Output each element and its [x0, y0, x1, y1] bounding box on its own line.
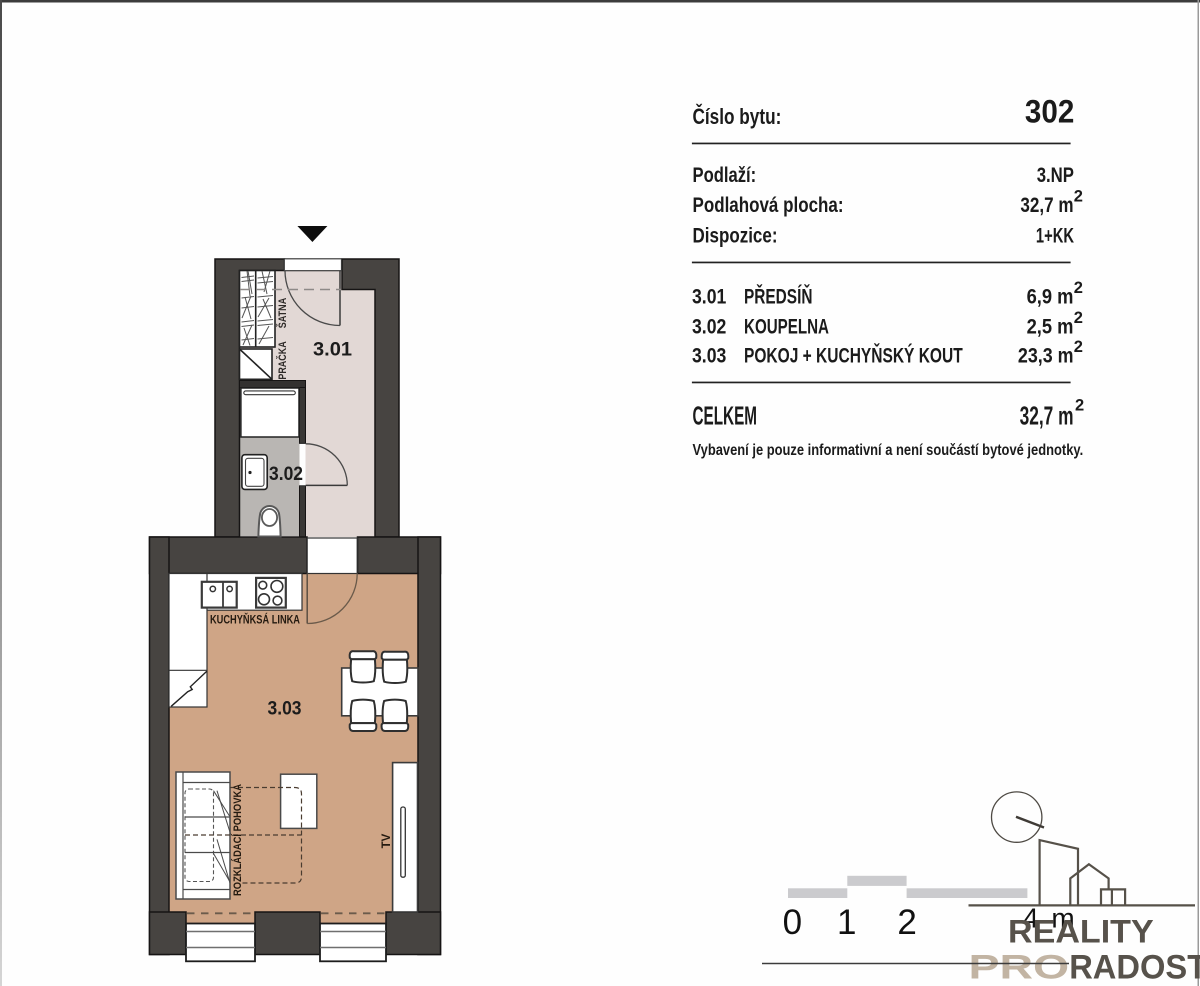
- svg-text:Dispozice:: Dispozice:: [693, 225, 778, 248]
- svg-text:1+KK: 1+KK: [1036, 225, 1074, 248]
- svg-text:32,7 m: 32,7 m: [1020, 194, 1073, 217]
- svg-text:302: 302: [1025, 93, 1074, 129]
- svg-text:KUCHYŇKSÁ LINKA: KUCHYŇKSÁ LINKA: [210, 614, 300, 627]
- svg-text:Podlaží:: Podlaží:: [693, 164, 757, 187]
- svg-text:Vybavení je pouze informativní: Vybavení je pouze informativní a není so…: [693, 442, 1084, 459]
- svg-text:REALITY: REALITY: [1008, 914, 1154, 950]
- svg-text:ROZKLÁDACÍ POHOVKA: ROZKLÁDACÍ POHOVKA: [231, 784, 244, 896]
- svg-text:2: 2: [1074, 188, 1083, 206]
- svg-text:23,3 m: 23,3 m: [1018, 344, 1074, 367]
- svg-text:PRO: PRO: [969, 949, 1070, 986]
- svg-text:3.02: 3.02: [269, 464, 303, 485]
- svg-text:PŘEDSÍŇ: PŘEDSÍŇ: [744, 284, 813, 308]
- svg-text:2: 2: [1074, 338, 1083, 356]
- svg-text:2: 2: [897, 903, 916, 942]
- svg-text:6,9 m: 6,9 m: [1027, 285, 1074, 308]
- svg-text:3.03: 3.03: [692, 344, 726, 367]
- svg-text:0: 0: [783, 903, 802, 942]
- svg-text:3.01: 3.01: [692, 285, 727, 308]
- svg-text:3.NP: 3.NP: [1037, 164, 1074, 187]
- svg-text:RADOST: RADOST: [1069, 949, 1200, 986]
- svg-text:2: 2: [1074, 309, 1083, 327]
- svg-text:3.03: 3.03: [268, 699, 302, 720]
- svg-text:3.01: 3.01: [313, 340, 352, 361]
- svg-text:POKOJ + KUCHYŇSKÝ KOUT: POKOJ + KUCHYŇSKÝ KOUT: [744, 343, 963, 367]
- svg-text:2: 2: [1074, 279, 1083, 297]
- svg-text:KOUPELNA: KOUPELNA: [744, 315, 829, 338]
- svg-text:CELKEM: CELKEM: [693, 401, 758, 431]
- svg-text:TV: TV: [381, 833, 393, 848]
- svg-text:3.02: 3.02: [692, 315, 726, 338]
- svg-text:1: 1: [837, 903, 856, 942]
- svg-text:PRAČKA: PRAČKA: [276, 341, 289, 379]
- svg-text:2: 2: [1075, 397, 1084, 415]
- svg-text:ŠATNA: ŠATNA: [276, 298, 289, 328]
- svg-text:2,5 m: 2,5 m: [1027, 315, 1074, 338]
- svg-text:32,7 m: 32,7 m: [1020, 401, 1074, 431]
- svg-text:Číslo bytu:: Číslo bytu:: [693, 104, 782, 129]
- svg-text:Podlahová plocha:: Podlahová plocha:: [693, 194, 844, 217]
